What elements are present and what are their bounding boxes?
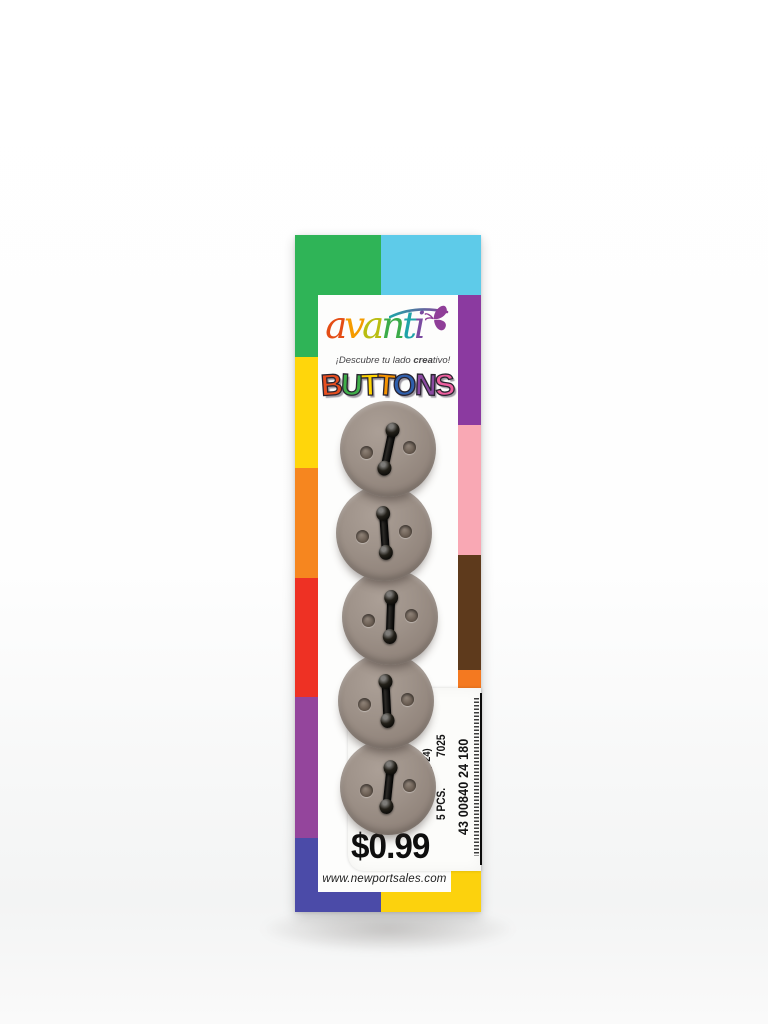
border-block-bottom-yellow [381, 892, 481, 912]
thread-knot-bottom [379, 798, 394, 814]
thread-knot-bottom [378, 544, 393, 560]
sewn-button-5 [340, 739, 436, 835]
brand-tagline: ¡Descubre tu lado creativo! [295, 355, 481, 366]
border-block-bottom-indigo [295, 892, 381, 912]
border-block-left-purple [295, 697, 318, 838]
website-url: www.newportsales.com [318, 873, 451, 885]
thread-knot-top [378, 674, 393, 690]
thread-knot-bottom [376, 459, 393, 477]
button-hole-left [360, 446, 373, 459]
barcode-microtext [474, 698, 479, 856]
button-hole-right [403, 779, 416, 792]
stitch-thread [383, 590, 398, 644]
barcode-number: 43 00840 24 180 [455, 725, 471, 835]
tagline-bold: crea [413, 355, 433, 366]
butterfly-icon [416, 302, 454, 339]
logo-letter: v [344, 304, 362, 347]
title-letter: S [433, 370, 456, 402]
barcode-number-text: 43 00840 24 180 [455, 739, 471, 835]
button-hole-right [399, 525, 412, 538]
button-hole-left [358, 698, 371, 711]
avanti-logo: avanti [325, 307, 423, 344]
logo-letter: a [362, 304, 381, 347]
product-photo-stage: avanti ¡Descubre tu lado c [0, 0, 768, 1024]
sewn-button-3 [342, 569, 438, 665]
sewn-button-4 [338, 653, 434, 749]
border-block-right-pink [458, 425, 481, 555]
thread-knot-bottom [383, 629, 398, 644]
button-hole-right [403, 441, 416, 454]
thread-knot-top [384, 590, 399, 605]
stitch-thread [376, 421, 400, 477]
thread-knot-top [383, 759, 398, 775]
button-hole-left [360, 784, 373, 797]
logo-letter: a [325, 304, 344, 347]
sticker-style-number-text: 7025 [436, 734, 448, 757]
floor-shadow [262, 906, 514, 952]
stitch-thread [378, 674, 394, 729]
border-block-left-red [295, 578, 318, 697]
button-hole-left [362, 614, 375, 627]
sticker-quantity: 5 PCS. [436, 784, 448, 820]
border-block-top-cyan [381, 235, 481, 295]
sticker-quantity-text: 5 PCS. [436, 788, 448, 820]
thread-knot-top [376, 506, 391, 522]
sticker-style-number: 7025 [436, 731, 448, 757]
sewn-button-2 [336, 485, 432, 581]
stitch-thread [376, 506, 393, 561]
thread-knot-bottom [380, 713, 395, 729]
tagline-prefix: ¡Descubre tu lado [336, 355, 414, 366]
border-block-left-orange [295, 468, 318, 578]
button-hole-right [405, 609, 418, 622]
stitch-thread [379, 759, 398, 814]
brand-header: avanti [295, 307, 481, 344]
sewn-button-1 [340, 401, 436, 497]
buttons-title: BUTTONS [295, 371, 481, 401]
border-block-top-green [295, 235, 381, 295]
border-block-right-brown [458, 555, 481, 670]
button-hole-right [401, 693, 414, 706]
tagline-suffix: tivo! [433, 355, 450, 366]
barcode-guard-line [480, 693, 483, 865]
button-hole-left [356, 530, 369, 543]
